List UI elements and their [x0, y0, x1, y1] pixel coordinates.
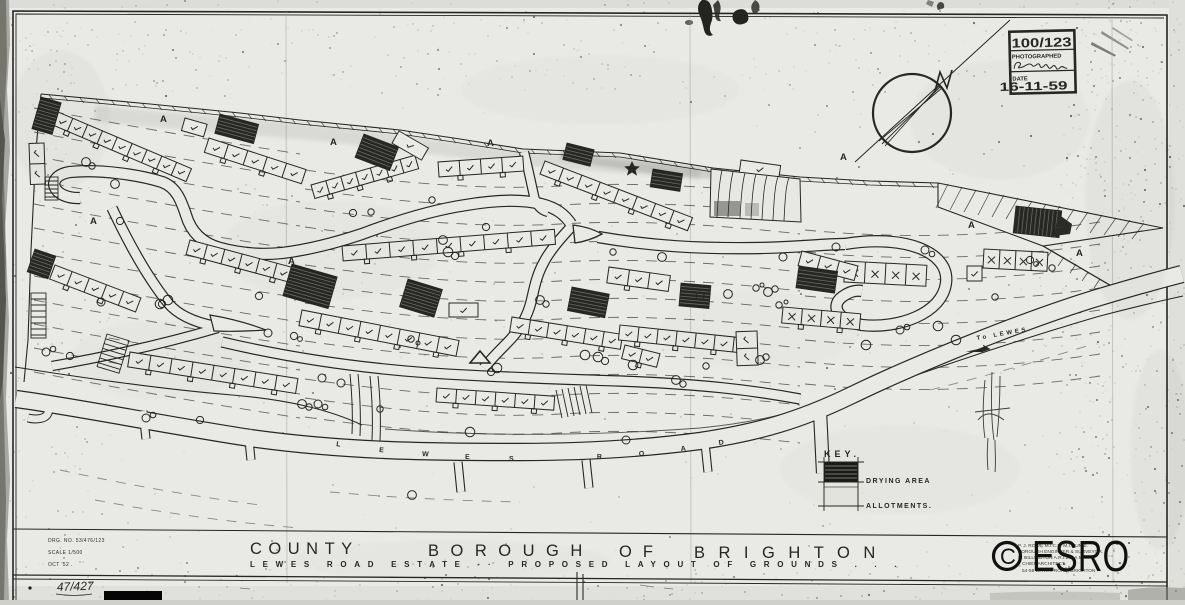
svg-text:PHOTOGRAPHED: PHOTOGRAPHED [1012, 54, 1062, 61]
svg-text:ESRO: ESRO [1032, 532, 1129, 581]
svg-text:C: C [1000, 544, 1016, 569]
svg-text:LEWES ROAD ESTATE ·· PROPOSED: LEWES ROAD ESTATE ·· PROPOSED LAYOUT OF … [250, 560, 904, 569]
svg-text:A: A [160, 114, 167, 125]
svg-text:A: A [330, 137, 337, 148]
svg-text:O: O [639, 451, 645, 458]
svg-text:A: A [680, 445, 686, 452]
svg-text:OF: OF [619, 543, 664, 561]
svg-text:W: W [422, 451, 429, 458]
svg-text:DRYING AREA: DRYING AREA [866, 478, 931, 485]
svg-text:BOROUGH: BOROUGH [428, 542, 594, 560]
svg-text:ALLOTMENTS.: ALLOTMENTS. [866, 503, 932, 510]
svg-text:KEY.: KEY. [824, 449, 860, 459]
svg-text:SCALE 1/500: SCALE 1/500 [48, 550, 83, 556]
svg-text:100/123: 100/123 [1011, 34, 1071, 50]
svg-text:DRG. NO. 53/476/123: DRG. NO. 53/476/123 [48, 538, 105, 544]
svg-text:E: E [465, 454, 470, 461]
svg-text:A: A [840, 152, 847, 163]
svg-text:A: A [968, 220, 975, 231]
svg-text:D: D [718, 439, 724, 447]
svg-text:16-11-59: 16-11-59 [999, 78, 1068, 94]
svg-text:47/427: 47/427 [57, 579, 95, 594]
svg-text:A: A [90, 216, 97, 227]
svg-text:COUNTY: COUNTY [250, 540, 359, 558]
svg-text:OCT '52 .: OCT '52 . [48, 562, 73, 568]
svg-text:R: R [597, 454, 602, 461]
svg-text:A: A [487, 138, 494, 149]
svg-text:S: S [509, 456, 514, 463]
svg-text:A: A [1076, 248, 1083, 259]
